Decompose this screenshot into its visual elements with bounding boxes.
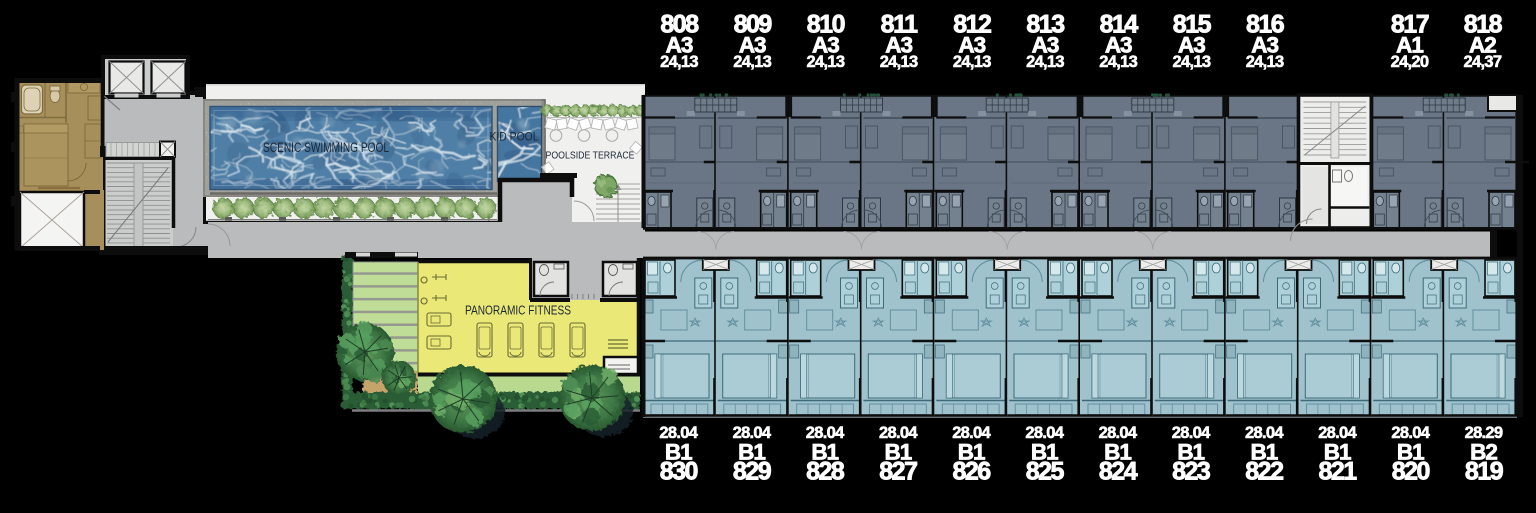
- svg-text:826: 826: [952, 458, 990, 486]
- svg-text:830: 830: [660, 458, 698, 486]
- svg-text:24,13: 24,13: [1026, 53, 1064, 71]
- svg-text:24,13: 24,13: [733, 53, 771, 71]
- svg-text:24,37: 24,37: [1464, 53, 1502, 71]
- svg-text:819: 819: [1465, 458, 1503, 486]
- svg-text:24,13: 24,13: [1246, 53, 1284, 71]
- svg-text:822: 822: [1245, 458, 1283, 486]
- svg-text:24,13: 24,13: [1173, 53, 1211, 71]
- svg-text:823: 823: [1172, 458, 1210, 486]
- svg-text:24,13: 24,13: [1099, 53, 1137, 71]
- svg-text:POOLSIDE TERRACE: POOLSIDE TERRACE: [546, 150, 635, 162]
- svg-text:SCENIC SWIMMING POOL: SCENIC SWIMMING POOL: [263, 140, 389, 155]
- svg-text:24,20: 24,20: [1391, 53, 1429, 71]
- svg-text:825: 825: [1026, 458, 1065, 486]
- svg-text:24,13: 24,13: [660, 53, 698, 71]
- svg-text:829: 829: [733, 458, 771, 486]
- svg-text:827: 827: [879, 458, 917, 486]
- svg-text:PANORAMIC FITNESS: PANORAMIC FITNESS: [465, 303, 571, 318]
- svg-text:824: 824: [1099, 458, 1138, 486]
- svg-text:24,13: 24,13: [953, 53, 991, 71]
- svg-text:24,13: 24,13: [880, 53, 918, 71]
- svg-text:820: 820: [1392, 458, 1430, 486]
- svg-text:KID POOL: KID POOL: [490, 132, 540, 144]
- svg-text:828: 828: [806, 458, 845, 486]
- svg-text:24,13: 24,13: [807, 53, 845, 71]
- svg-text:821: 821: [1318, 458, 1357, 486]
